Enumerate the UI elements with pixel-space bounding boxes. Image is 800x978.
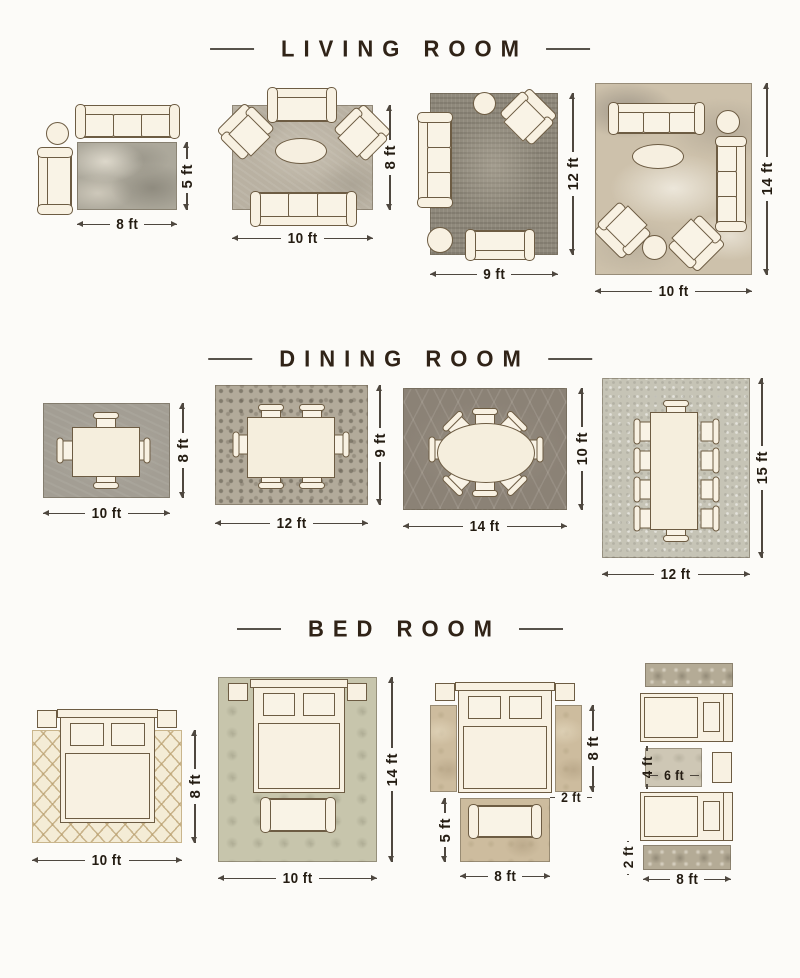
bench (468, 805, 542, 838)
dimension-line (649, 775, 658, 777)
chair-back (713, 419, 720, 445)
dining-table (247, 417, 335, 478)
sofa-arm (715, 136, 747, 147)
bench-arm (468, 804, 479, 839)
dimension-label: 10 ft (658, 283, 688, 300)
round-side-table (46, 122, 69, 145)
dimension-label: 10 ft (92, 852, 122, 869)
height-dimension: 9 ft (372, 385, 388, 505)
width-dimension: 10 ft (595, 283, 752, 300)
layout-dining-14x10: 14 ft 10 ft (395, 380, 600, 540)
dimension-label: 14 ft (470, 518, 500, 535)
sofa-body (616, 103, 697, 134)
runner-rug (643, 845, 731, 870)
sofa-body (38, 155, 72, 207)
title-dash (548, 358, 592, 361)
dining-chair (701, 419, 720, 445)
dimension-line (572, 93, 574, 152)
bench (260, 798, 336, 832)
height-dimension: 15 ft (754, 378, 770, 558)
dimension-line (507, 526, 567, 528)
nightstand (37, 710, 57, 728)
bench-body (476, 805, 534, 838)
dimension-line (391, 791, 393, 862)
bed-blanket (65, 753, 150, 819)
section-title-dining-room: DINING ROOM (208, 346, 592, 372)
sofa-arm (715, 221, 747, 232)
layout-living-8x5: 8 ft 5 ft (20, 90, 205, 240)
bench-arm (260, 797, 271, 833)
title-dash (519, 628, 563, 631)
width-dimension: 8 ft (77, 216, 177, 233)
dimension-label: 5 ft (179, 164, 196, 189)
bed-pillow (703, 702, 720, 732)
dimension-label: 8 ft (116, 216, 138, 233)
bed-headboard (723, 793, 725, 840)
dimension-line (215, 523, 270, 525)
sofa-body (275, 88, 329, 122)
bed-headboard (723, 694, 725, 741)
dimension-line (389, 105, 391, 140)
sofa-arm (37, 147, 73, 158)
dimension-line (587, 797, 592, 799)
dimension-line (592, 766, 594, 792)
width-dimension: 10 ft (218, 870, 377, 887)
bed-pillow (111, 723, 144, 746)
dining-chair (701, 506, 720, 532)
runner-rug (430, 705, 457, 792)
height-dimension: 14 ft (384, 677, 400, 862)
sofa-cushion (84, 114, 114, 137)
layout-bed-runners: 8 ft 2 ft 5 ft 8 ft (420, 665, 610, 880)
height-dimension: 5 ft (179, 142, 195, 210)
dimension-line (522, 876, 550, 878)
bed-blanket (644, 796, 698, 837)
bed-headboard (250, 679, 348, 688)
chair-back (472, 490, 498, 497)
three-seat-sofa (716, 136, 746, 232)
twin-bed (640, 792, 733, 841)
sofa-cushion (113, 114, 143, 137)
chair-seat (701, 451, 714, 471)
sofa-cushion (317, 193, 348, 217)
bed-headboard (455, 682, 555, 691)
dimension-label: 15 ft (754, 451, 771, 484)
loveseat (465, 230, 535, 260)
dimension-label: 8 ft (676, 871, 698, 888)
bench-body (268, 798, 328, 832)
dimension-line (581, 388, 583, 427)
sofa-arm (465, 229, 476, 261)
layout-living-10x8: 10 ft 8 ft (215, 80, 400, 255)
area-rug (77, 142, 177, 210)
chair-back (537, 437, 544, 463)
nightstand (435, 683, 455, 701)
sofa-arm (326, 87, 337, 123)
dimension-line (581, 471, 583, 510)
chair-back (713, 477, 720, 503)
layout-dining-12x9: 12 ft 9 ft (205, 375, 400, 535)
bench-cushion (477, 806, 533, 837)
dimension-line (595, 291, 652, 293)
title-dash (237, 628, 281, 631)
dimension-label: 2 ft (621, 846, 636, 868)
dimension-label: 10 ft (574, 432, 591, 465)
dimension-label: 8 ft (175, 438, 192, 463)
chair-back (343, 432, 350, 458)
chair-back (93, 482, 119, 489)
nightstand (712, 752, 732, 783)
dimension-line (403, 526, 463, 528)
layout-bed-10x14: 10 ft 14 ft (195, 655, 405, 885)
round-side-table (427, 227, 453, 253)
dimension-label: 12 ft (661, 566, 691, 583)
bed-pillow (303, 693, 335, 716)
oval-coffee-table (632, 144, 684, 169)
accent-rug-width-dimension: 6 ft (649, 767, 699, 784)
dimension-line (646, 784, 648, 789)
dimension-line (144, 224, 177, 226)
chair-back (144, 438, 151, 464)
dimension-label: 8 ft (382, 145, 399, 170)
dimension-line (182, 468, 184, 498)
bed-pillow (468, 696, 501, 719)
sofa-body (258, 192, 349, 226)
dimension-line (194, 804, 196, 843)
height-dimension: 10 ft (574, 388, 590, 510)
dining-chair (701, 477, 720, 503)
bed-pillow (509, 696, 542, 719)
title-dash (208, 358, 252, 361)
dimension-line (389, 175, 391, 210)
sofa-cushion (669, 112, 696, 133)
loveseat (38, 147, 72, 215)
bed-blanket (258, 723, 340, 789)
section-title-text: DINING ROOM (270, 345, 530, 372)
sofa-body (418, 120, 452, 200)
dimension-line (766, 83, 768, 157)
dimension-label: 14 ft (759, 162, 776, 195)
runner-height-dimension: 2 ft (620, 841, 636, 874)
bench-arm (531, 804, 542, 839)
section-title-text: LIVING ROOM (272, 35, 528, 62)
chair-seat (701, 480, 714, 500)
width-dimension: 12 ft (602, 566, 750, 583)
dimension-label: 10 ft (91, 505, 121, 522)
dimension-label: 8 ft (494, 868, 516, 885)
runner-rug (645, 663, 733, 687)
chair-back (663, 535, 689, 542)
dimension-line (128, 513, 170, 515)
section-title-living-room: LIVING ROOM (210, 36, 590, 62)
dining-table (72, 427, 140, 477)
dimension-line (391, 677, 393, 748)
runner-width-dimension: 2 ft (550, 789, 592, 806)
layout-living-10x14: 10 ft 14 ft (590, 70, 795, 310)
oval-dining-table (437, 423, 535, 483)
loveseat (267, 88, 337, 122)
three-seat-sofa (608, 103, 705, 134)
dining-chair (701, 448, 720, 474)
width-dimension: 8 ft (460, 868, 550, 885)
dimension-line (324, 238, 373, 240)
bed (253, 680, 345, 793)
bed-blanket (463, 726, 547, 789)
sofa-cushion (474, 231, 526, 251)
dimension-label: 12 ft (565, 157, 582, 190)
dimension-line (430, 274, 477, 276)
dimension-line (704, 879, 731, 881)
sofa-cushion (427, 147, 451, 174)
dimension-line (592, 705, 594, 731)
dimension-label: 2 ft (561, 790, 581, 805)
dimension-label: 8 ft (585, 736, 602, 761)
dimension-line (218, 878, 276, 880)
sofa-arm (417, 112, 453, 123)
width-dimension: 8 ft (643, 871, 731, 888)
dimension-line (186, 142, 188, 159)
dimension-line (232, 238, 281, 240)
dimension-line (444, 847, 446, 862)
chair-back (713, 448, 720, 474)
dimension-line (379, 462, 381, 505)
chair-seat (701, 509, 714, 529)
sofa-arm (346, 191, 357, 227)
rug-size-guide: LIVING ROOM 8 ft 5 ft (0, 0, 800, 978)
title-dash (546, 48, 590, 51)
chair-back (299, 482, 325, 489)
chair-seat (701, 422, 714, 442)
dining-table (650, 412, 698, 530)
twin-bed (640, 693, 733, 742)
sofa-body (716, 144, 746, 224)
section-title-text: BED ROOM (299, 615, 501, 642)
dimension-line (379, 385, 381, 428)
layout-dining-12x15: 12 ft 15 ft (590, 370, 795, 590)
dimension-line (698, 574, 750, 576)
bed-headboard (57, 709, 158, 718)
dimension-label: 6 ft (664, 768, 684, 783)
width-dimension: 10 ft (232, 230, 373, 247)
sofa-arm (694, 102, 705, 135)
sofa-cushion (259, 193, 290, 217)
sofa-cushion (427, 121, 451, 148)
dimension-line (690, 775, 699, 777)
height-dimension: 8 ft (382, 105, 398, 210)
nightstand (157, 710, 177, 728)
bed-blanket (644, 697, 698, 738)
layout-bed-twin: 4 ft 6 ft 2 ft 8 ft (615, 650, 800, 895)
dimension-line (643, 879, 670, 881)
sofa-cushion (717, 171, 737, 198)
dimension-line (511, 274, 558, 276)
dimension-line (572, 196, 574, 255)
sofa-arm (37, 204, 73, 215)
dimension-line (695, 291, 752, 293)
sofa-arm (250, 191, 261, 227)
sofa-cushion (47, 156, 71, 206)
foot-rug-height-dimension: 5 ft (437, 798, 453, 862)
bed (60, 710, 155, 823)
oval-coffee-table (275, 138, 327, 164)
height-dimension: 8 ft (175, 403, 191, 498)
sofa-arm (417, 197, 453, 208)
sofa-body (473, 230, 527, 260)
bed-pillow (70, 723, 103, 746)
width-dimension: 9 ft (430, 266, 558, 283)
three-seat-sofa (75, 105, 180, 138)
dimension-label: 10 ft (287, 230, 317, 247)
dimension-line (766, 201, 768, 275)
sofa-arm (75, 104, 86, 139)
chair-back (258, 482, 284, 489)
dimension-line (32, 860, 85, 862)
dimension-line (77, 224, 110, 226)
dimension-label: 14 ft (384, 753, 401, 786)
nightstand (347, 683, 367, 701)
dimension-line (129, 860, 182, 862)
runner-rug (555, 705, 582, 792)
dimension-line (43, 513, 85, 515)
sofa-cushion (643, 112, 670, 133)
chair-back (713, 506, 720, 532)
width-dimension: 10 ft (43, 505, 170, 522)
sofa-arm (267, 87, 278, 123)
dimension-line (194, 730, 196, 769)
layout-bed-10x8: 10 ft 8 ft (15, 680, 210, 870)
height-dimension: 8 ft (187, 730, 203, 843)
runner-height-dimension: 8 ft (585, 705, 601, 792)
three-seat-sofa (250, 192, 357, 226)
bed-pillow (263, 693, 295, 716)
dimension-label: 12 ft (276, 515, 306, 532)
dimension-line (182, 403, 184, 433)
three-seat-sofa (418, 112, 452, 208)
width-dimension: 14 ft (403, 518, 567, 535)
sofa-arm (608, 102, 619, 135)
layout-dining-10x8: 10 ft 8 ft (20, 390, 210, 525)
dimension-line (550, 797, 555, 799)
sofa-cushion (141, 114, 171, 137)
dimension-line (319, 878, 377, 880)
height-dimension: 14 ft (759, 83, 775, 275)
sofa-arm (524, 229, 535, 261)
dimension-line (646, 746, 648, 751)
dimension-label: 5 ft (437, 818, 454, 843)
dimension-label: 9 ft (372, 433, 389, 458)
layout-living-9x12: 9 ft 12 ft (405, 75, 595, 285)
dimension-line (460, 876, 488, 878)
bed (458, 683, 552, 793)
width-dimension: 10 ft (32, 852, 182, 869)
sofa-cushion (427, 172, 451, 199)
height-dimension: 12 ft (565, 93, 581, 255)
sofa-cushion (288, 193, 319, 217)
nightstand (228, 683, 248, 701)
round-side-table (642, 235, 667, 260)
bed-pillow (703, 801, 720, 831)
dimension-line (444, 798, 446, 813)
sofa-cushion (717, 196, 737, 223)
dimension-line (602, 574, 654, 576)
bench-arm (325, 797, 336, 833)
width-dimension: 12 ft (215, 515, 368, 532)
dimension-line (761, 378, 763, 446)
nightstand (555, 683, 575, 701)
round-side-table (473, 92, 496, 115)
sofa-arm (169, 104, 180, 139)
bench-cushion (269, 799, 327, 831)
sofa-body (83, 105, 172, 138)
sofa-cushion (617, 112, 644, 133)
dimension-label: 9 ft (483, 266, 505, 283)
round-side-table (716, 110, 740, 134)
sofa-cushion (717, 145, 737, 172)
dimension-line (761, 490, 763, 558)
dimension-label: 8 ft (187, 774, 204, 799)
dimension-line (313, 523, 368, 525)
section-title-bed-room: BED ROOM (237, 616, 563, 642)
dimension-label: 10 ft (282, 870, 312, 887)
dimension-line (186, 193, 188, 210)
sofa-cushion (276, 97, 328, 121)
title-dash (210, 48, 254, 51)
